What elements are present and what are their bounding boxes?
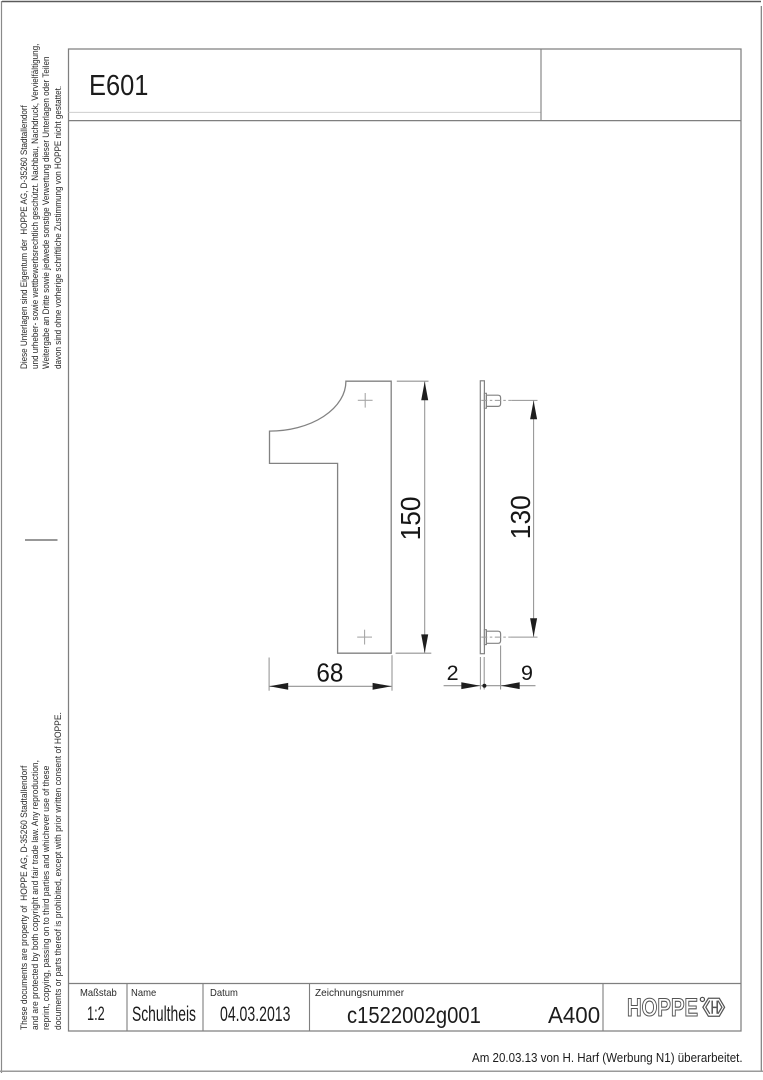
svg-text:130: 130	[505, 495, 536, 539]
svg-text:68: 68	[316, 659, 343, 687]
svg-text:150: 150	[395, 496, 426, 540]
svg-text:HOPPE: HOPPE	[627, 994, 698, 1022]
svg-text:9: 9	[521, 661, 533, 685]
svg-text:2: 2	[447, 661, 459, 685]
